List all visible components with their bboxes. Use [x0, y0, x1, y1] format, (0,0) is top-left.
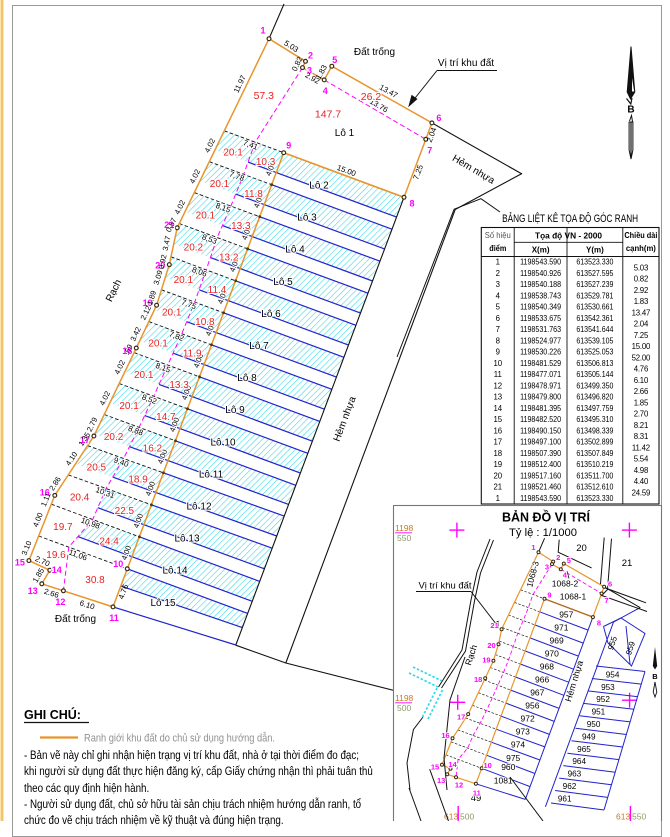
svg-text:613505.144: 613505.144: [576, 370, 614, 379]
svg-text:1198507.390: 1198507.390: [520, 449, 562, 458]
svg-text:7: 7: [427, 145, 432, 155]
svg-text:951: 951: [592, 708, 606, 717]
svg-text:10: 10: [493, 359, 502, 368]
svg-text:14: 14: [52, 565, 62, 575]
svg-text:BẢN ĐỒ VỊ TRÍ: BẢN ĐỒ VỊ TRÍ: [502, 510, 590, 525]
svg-text:1.83: 1.83: [314, 63, 329, 81]
svg-text:13: 13: [437, 776, 445, 785]
svg-text:20.1: 20.1: [196, 210, 216, 221]
svg-text:17: 17: [457, 713, 465, 722]
svg-text:11.42: 11.42: [632, 443, 650, 452]
svg-text:21: 21: [622, 558, 633, 569]
svg-text:20.4: 20.4: [70, 492, 90, 503]
svg-text:13.3: 13.3: [231, 221, 251, 232]
svg-text:5.03: 5.03: [634, 263, 648, 272]
svg-text:2.04: 2.04: [425, 126, 439, 144]
svg-text:điểm: điểm: [489, 244, 506, 253]
svg-text:1198540.349: 1198540.349: [520, 303, 561, 312]
svg-text:24.4: 24.4: [99, 537, 119, 548]
svg-text:1: 1: [496, 494, 500, 503]
svg-text:963: 963: [568, 770, 582, 779]
svg-text:4: 4: [496, 291, 501, 300]
svg-text:953: 953: [601, 683, 615, 692]
svg-text:974: 974: [511, 740, 525, 750]
svg-text:7: 7: [605, 596, 609, 605]
svg-text:11: 11: [473, 788, 481, 797]
svg-text:21: 21: [490, 621, 498, 630]
svg-text:20: 20: [487, 641, 495, 650]
svg-text:973: 973: [516, 727, 530, 737]
svg-text:14: 14: [493, 404, 502, 413]
svg-text:970: 970: [545, 649, 559, 659]
svg-text:0.92: 0.92: [157, 254, 169, 270]
svg-text:960: 960: [501, 762, 515, 772]
svg-text:20: 20: [493, 471, 502, 480]
svg-text:5: 5: [332, 55, 337, 65]
svg-text:12: 12: [493, 381, 502, 390]
svg-text:Đất trống: Đất trống: [354, 46, 395, 58]
svg-text:11.4: 11.4: [208, 285, 227, 296]
svg-text:613496.820: 613496.820: [576, 393, 614, 402]
svg-text:20.1: 20.1: [174, 275, 194, 286]
svg-text:30.8: 30.8: [85, 575, 105, 586]
svg-text:952: 952: [596, 695, 610, 704]
svg-text:4.10: 4.10: [64, 450, 80, 467]
svg-text:613527.595: 613527.595: [576, 269, 614, 278]
svg-text:17: 17: [493, 438, 502, 447]
svg-text:24.59: 24.59: [632, 488, 651, 497]
svg-text:1198530.226: 1198530.226: [520, 348, 561, 357]
svg-text:13.2: 13.2: [219, 253, 239, 264]
svg-text:GHI CHÚ:: GHI CHÚ:: [24, 707, 81, 722]
svg-text:Lô 13: Lô 13: [174, 534, 199, 545]
svg-text:1198478.971: 1198478.971: [520, 381, 561, 390]
svg-text:Rạch: Rạch: [104, 278, 124, 304]
svg-text:613498.339: 613498.339: [576, 426, 613, 435]
svg-text:3: 3: [496, 280, 500, 289]
svg-text:4: 4: [323, 86, 328, 96]
svg-text:613499.350: 613499.350: [576, 381, 614, 390]
svg-text:1198512.400: 1198512.400: [520, 460, 562, 469]
svg-text:2: 2: [496, 269, 500, 278]
svg-text:10.8: 10.8: [195, 317, 215, 328]
svg-text:2.86: 2.86: [47, 475, 63, 492]
svg-text:550: 550: [632, 812, 646, 822]
svg-text:20.1: 20.1: [162, 307, 182, 318]
svg-text:11.8: 11.8: [244, 189, 263, 200]
svg-text:147.7: 147.7: [315, 109, 341, 121]
svg-text:Tỷ lệ : 1/1000: Tỷ lệ : 1/1000: [509, 527, 577, 539]
svg-text:10: 10: [113, 559, 123, 569]
svg-text:9: 9: [286, 141, 291, 151]
svg-text:18: 18: [493, 449, 502, 458]
svg-text:15: 15: [431, 762, 439, 771]
svg-text:15: 15: [493, 415, 502, 424]
svg-text:1198490.150: 1198490.150: [520, 426, 562, 435]
svg-text:971: 971: [554, 623, 568, 633]
svg-text:1198543.590: 1198543.590: [520, 258, 562, 267]
svg-text:Lô 3: Lô 3: [297, 213, 317, 224]
svg-text:Chiều dài: Chiều dài: [624, 231, 657, 240]
svg-text:Lô 7: Lô 7: [249, 341, 269, 352]
svg-text:12: 12: [455, 781, 463, 790]
svg-text:961: 961: [558, 794, 572, 803]
svg-text:9: 9: [496, 348, 500, 357]
svg-text:Lô 8: Lô 8: [237, 373, 257, 384]
svg-text:500: 500: [460, 812, 474, 822]
svg-text:20.1: 20.1: [119, 401, 139, 412]
svg-text:613506.813: 613506.813: [576, 359, 613, 368]
svg-text:4.76: 4.76: [634, 365, 648, 374]
svg-text:956: 956: [525, 701, 539, 711]
svg-text:2: 2: [308, 50, 313, 60]
svg-text:2.92: 2.92: [634, 286, 648, 295]
svg-text:20.5: 20.5: [87, 462, 107, 473]
svg-text:Số hiệu: Số hiệu: [485, 231, 511, 240]
svg-text:Đất trống: Đất trống: [55, 613, 96, 625]
svg-text:14: 14: [448, 760, 457, 769]
svg-text:1.83: 1.83: [634, 297, 648, 306]
svg-text:Lô 1: Lô 1: [335, 128, 355, 139]
svg-text:19.7: 19.7: [53, 522, 73, 533]
svg-text:954: 954: [606, 670, 620, 679]
svg-text:Lô 9: Lô 9: [225, 405, 245, 416]
svg-text:613510.219: 613510.219: [576, 460, 613, 469]
svg-text:BẢNG LIỆT KÊ TỌA ĐỘ GÓC RANH: BẢNG LIỆT KÊ TỌA ĐỘ GÓC RANH: [502, 212, 638, 225]
svg-text:Vị trí khu đất: Vị trí khu đất: [438, 57, 494, 69]
svg-text:16: 16: [441, 731, 449, 740]
svg-text:968: 968: [540, 662, 554, 672]
svg-text:1: 1: [260, 26, 265, 36]
svg-text:16.2: 16.2: [143, 443, 163, 454]
svg-text:11.9: 11.9: [183, 349, 202, 360]
svg-text:15.00: 15.00: [632, 342, 651, 351]
svg-text:20.1: 20.1: [148, 339, 168, 350]
svg-text:3.09: 3.09: [152, 269, 165, 286]
svg-text:6.10: 6.10: [634, 376, 649, 385]
svg-text:B: B: [627, 105, 634, 116]
svg-text:52.00: 52.00: [632, 353, 651, 362]
svg-text:613: 613: [444, 812, 458, 822]
svg-text:613542.361: 613542.361: [576, 314, 613, 323]
svg-text:3.47: 3.47: [161, 235, 173, 251]
svg-text:15: 15: [15, 558, 25, 568]
svg-text:969: 969: [550, 636, 564, 646]
svg-text:1198533.675: 1198533.675: [520, 314, 562, 323]
svg-text:cạnh(m): cạnh(m): [626, 244, 656, 253]
svg-text:1198531.763: 1198531.763: [520, 325, 561, 334]
svg-text:949: 949: [582, 732, 596, 741]
svg-text:19: 19: [482, 655, 490, 664]
svg-text:Lô 2: Lô 2: [309, 181, 329, 192]
svg-text:11: 11: [109, 613, 119, 623]
svg-text:1198524.977: 1198524.977: [520, 336, 561, 345]
svg-text:613530.661: 613530.661: [576, 303, 613, 312]
svg-text:613527.239: 613527.239: [576, 280, 613, 289]
svg-text:613525.053: 613525.053: [576, 348, 613, 357]
svg-text:8: 8: [597, 619, 601, 628]
svg-text:1068-2: 1068-2: [552, 579, 579, 589]
svg-text:613507.849: 613507.849: [576, 449, 613, 458]
svg-text:1198: 1198: [395, 693, 414, 703]
svg-text:1198538.743: 1198538.743: [520, 291, 561, 300]
svg-text:1198481.395: 1198481.395: [520, 404, 562, 413]
svg-text:1.85: 1.85: [634, 398, 649, 407]
svg-text:500: 500: [397, 703, 411, 713]
svg-text:613529.781: 613529.781: [576, 291, 613, 300]
svg-text:966: 966: [535, 675, 549, 685]
svg-text:19: 19: [493, 460, 502, 469]
svg-text:957: 957: [559, 610, 573, 620]
svg-text:Hẻm nhựa: Hẻm nhựa: [332, 395, 359, 444]
svg-text:Tọa độ VN - 2000: Tọa độ VN - 2000: [535, 232, 602, 241]
svg-text:613511.700: 613511.700: [576, 471, 614, 480]
svg-text:3: 3: [545, 563, 549, 572]
svg-text:1.85: 1.85: [31, 566, 47, 584]
svg-text:1198479.800: 1198479.800: [520, 393, 562, 402]
svg-text:Lô 4: Lô 4: [285, 245, 305, 256]
svg-text:13.3: 13.3: [169, 380, 189, 391]
svg-text:14.7: 14.7: [156, 412, 176, 423]
svg-text:1198482.520: 1198482.520: [520, 415, 562, 424]
svg-text:962: 962: [563, 782, 577, 791]
svg-text:1198481.529: 1198481.529: [520, 359, 561, 368]
svg-text:613495.310: 613495.310: [576, 415, 614, 424]
svg-text:613523.330: 613523.330: [576, 494, 614, 503]
svg-text:613502.899: 613502.899: [576, 438, 613, 447]
svg-text:5: 5: [496, 303, 501, 312]
svg-text:11: 11: [494, 370, 502, 379]
svg-text:13: 13: [493, 393, 502, 402]
svg-text:20.1: 20.1: [210, 179, 230, 190]
svg-text:6: 6: [436, 113, 441, 123]
svg-text:X(m): X(m): [532, 246, 550, 255]
svg-text:7: 7: [496, 325, 500, 334]
svg-text:20: 20: [576, 543, 587, 554]
svg-text:19.6: 19.6: [46, 550, 66, 561]
svg-text:Lô 15: Lô 15: [150, 598, 175, 609]
svg-text:1198521.460: 1198521.460: [520, 483, 562, 492]
svg-text:1198517.160: 1198517.160: [520, 471, 562, 480]
svg-text:8.21: 8.21: [634, 421, 648, 430]
svg-text:B: B: [652, 672, 658, 681]
svg-text:Hẻm nhựa: Hẻm nhựa: [450, 153, 497, 187]
svg-text:6: 6: [608, 579, 612, 588]
svg-text:11,06: 11,06: [68, 548, 89, 563]
svg-text:Y(m): Y(m): [586, 246, 604, 255]
svg-text:613541.644: 613541.644: [576, 325, 614, 334]
svg-text:Lô 14: Lô 14: [162, 566, 187, 577]
svg-text:8: 8: [496, 336, 500, 345]
svg-text:613523.330: 613523.330: [576, 258, 614, 267]
svg-text:26.2: 26.2: [361, 91, 382, 103]
svg-text:7.25: 7.25: [634, 331, 649, 340]
svg-text:10.3: 10.3: [256, 157, 276, 168]
svg-text:5: 5: [567, 556, 571, 565]
svg-text:Lô 12: Lô 12: [186, 502, 211, 513]
svg-text:2.04: 2.04: [634, 320, 649, 329]
svg-text:5.54: 5.54: [634, 455, 649, 464]
svg-text:1198540.188: 1198540.188: [520, 280, 561, 289]
svg-text:967: 967: [530, 688, 544, 698]
svg-text:Lô 5: Lô 5: [273, 277, 293, 288]
svg-text:1198497.100: 1198497.100: [520, 438, 562, 447]
svg-text:1198: 1198: [395, 523, 414, 533]
svg-text:Vị trí khu đất: Vị trí khu đất: [419, 581, 472, 592]
svg-text:4.40: 4.40: [634, 477, 649, 486]
svg-text:2.70: 2.70: [634, 410, 649, 419]
svg-text:1198543.590: 1198543.590: [520, 494, 562, 503]
svg-text:964: 964: [572, 757, 586, 766]
svg-text:4.76: 4.76: [117, 583, 131, 600]
svg-text:6: 6: [496, 314, 500, 323]
svg-text:7.25: 7.25: [411, 163, 425, 181]
svg-text:Lô 6: Lô 6: [261, 309, 281, 320]
svg-text:9: 9: [547, 590, 551, 599]
svg-text:Lô 10: Lô 10: [210, 437, 235, 448]
svg-text:16: 16: [493, 426, 502, 435]
svg-text:550: 550: [397, 533, 411, 543]
svg-text:18: 18: [474, 675, 482, 684]
svg-text:950: 950: [587, 720, 601, 729]
svg-text:972: 972: [521, 714, 535, 724]
svg-text:20.2: 20.2: [104, 432, 124, 443]
svg-text:1198477.071: 1198477.071: [520, 370, 561, 379]
svg-text:10: 10: [484, 761, 492, 770]
svg-text:1: 1: [496, 258, 500, 267]
svg-text:20.1: 20.1: [223, 148, 243, 159]
svg-text:1198540.926: 1198540.926: [520, 269, 561, 278]
svg-text:4.98: 4.98: [634, 466, 648, 475]
svg-text:21: 21: [493, 483, 502, 492]
svg-text:18.9: 18.9: [128, 475, 148, 486]
svg-text:613512.610: 613512.610: [576, 483, 614, 492]
svg-text:8.31: 8.31: [634, 432, 648, 441]
svg-text:2: 2: [556, 553, 560, 562]
svg-text:22.5: 22.5: [115, 506, 135, 517]
svg-text:13: 13: [28, 586, 38, 596]
svg-text:Ranh giới khu đất do chủ sử dụ: Ranh giới khu đất do chủ sử dụng hướng d…: [84, 732, 275, 745]
svg-text:2.66: 2.66: [634, 387, 648, 396]
svg-text:11.97: 11.97: [232, 74, 248, 95]
svg-text:57.3: 57.3: [254, 90, 275, 102]
svg-text:613497.759: 613497.759: [576, 404, 613, 413]
svg-text:20.2: 20.2: [184, 242, 204, 253]
svg-text:1068-1: 1068-1: [560, 592, 587, 602]
svg-text:965: 965: [577, 745, 591, 754]
svg-text:1: 1: [531, 543, 535, 552]
svg-text:8: 8: [409, 198, 414, 208]
svg-text:613539.105: 613539.105: [576, 336, 614, 345]
svg-text:13.47: 13.47: [632, 308, 651, 317]
svg-text:0.82: 0.82: [634, 275, 648, 284]
svg-text:20.1: 20.1: [134, 370, 154, 381]
svg-text:Lô 11: Lô 11: [199, 469, 224, 480]
svg-text:613: 613: [616, 812, 630, 822]
